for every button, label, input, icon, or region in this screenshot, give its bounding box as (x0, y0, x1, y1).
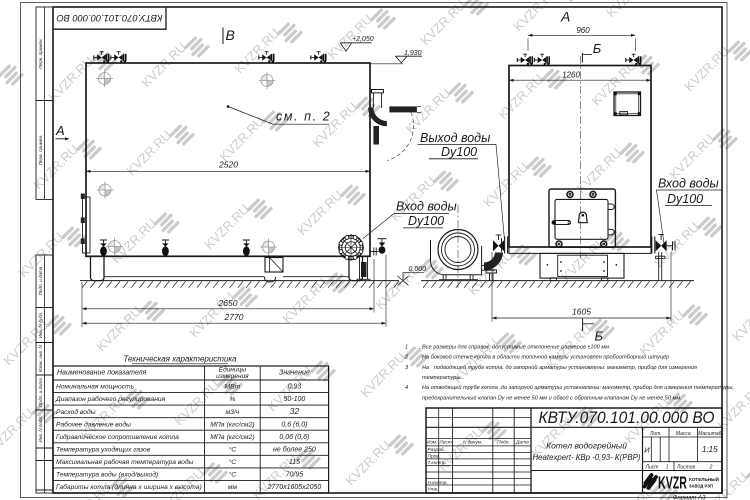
svg-text:Температура воды (вход/выход): Температура воды (вход/выход) (56, 471, 158, 479)
svg-text:На боковой стенке котла в обла: На боковой стенке котла в области топочн… (422, 354, 669, 361)
svg-text:4: 4 (405, 385, 408, 391)
svg-text:Максимальная рабочая температу: Максимальная рабочая температура воды (56, 458, 194, 466)
svg-text:В: В (226, 27, 235, 43)
svg-text:Утв.: Утв. (428, 487, 439, 493)
svg-text:Dy100: Dy100 (667, 192, 703, 206)
svg-text:А: А (55, 123, 65, 138)
svg-text:КВТУ.070.101.00.000 ВО: КВТУ.070.101.00.000 ВО (56, 12, 163, 23)
svg-text:мм: мм (228, 484, 238, 491)
svg-text:1:15: 1:15 (702, 445, 718, 454)
svg-text:Расход воды: Расход воды (56, 408, 96, 416)
svg-text:И: И (644, 446, 650, 455)
svg-text:температуры.: температуры. (422, 375, 462, 381)
svg-text:%: % (229, 396, 235, 403)
svg-text:Дата: Дата (515, 440, 529, 446)
svg-text:Лист: Лист (438, 440, 451, 446)
svg-text:Вход воды: Вход воды (396, 200, 457, 214)
svg-text:А: А (560, 9, 570, 25)
svg-text:115: 115 (289, 459, 300, 466)
svg-text:Dy100: Dy100 (408, 214, 444, 228)
svg-text:МПа (кгс/см2): МПа (кгс/см2) (210, 421, 254, 428)
svg-text:Температура уходящих газов: Температура уходящих газов (56, 445, 151, 453)
svg-text:32: 32 (290, 406, 300, 416)
svg-text:2650: 2650 (218, 298, 238, 308)
svg-text:Разраб.: Разраб. (428, 447, 445, 453)
svg-text:0,06 (0,6): 0,06 (0,6) (279, 434, 309, 441)
svg-text:Б: Б (595, 329, 604, 344)
svg-text:Лист: Лист (645, 464, 659, 470)
svg-text:0,93: 0,93 (288, 384, 302, 391)
svg-text:1,930: 1,930 (404, 50, 422, 57)
svg-text:960: 960 (576, 26, 590, 35)
svg-text:°С: °С (229, 458, 237, 466)
svg-text:Вход воды: Вход воды (658, 177, 719, 191)
svg-text:Наименование показателя: Наименование показателя (57, 370, 147, 377)
svg-text:Н.контр.: Н.контр. (428, 480, 448, 486)
svg-text:Масса: Масса (676, 431, 691, 437)
svg-text:не более 250: не более 250 (273, 445, 316, 453)
svg-text:1: 1 (405, 344, 408, 350)
svg-text:2770: 2770 (224, 312, 244, 322)
svg-text:На подводящей трубе котла, д: На подводящей трубе котла, до запорной а… (422, 364, 697, 371)
svg-text:2: 2 (709, 464, 713, 470)
svg-text:Номинальная мощность: Номинальная мощность (56, 384, 135, 391)
svg-text:Рабочее давление воды: Рабочее давление воды (56, 420, 131, 428)
svg-text:м3/ч: м3/ч (225, 409, 239, 416)
svg-text:Пров.: Пров. (428, 454, 441, 460)
svg-text:КОТЕЛЬНЫЙ: КОТЕЛЬНЫЙ (689, 477, 719, 482)
svg-text:Dy100: Dy100 (441, 145, 477, 159)
svg-text:Гидравлическое сопротивление к: Гидравлическое сопротивление котла (56, 433, 179, 441)
svg-text:Т.контр.: Т.контр. (428, 460, 447, 466)
svg-text:Техническая характеристика: Техническая характеристика (123, 355, 237, 364)
svg-text:0,6 (6,0): 0,6 (6,0) (281, 421, 307, 428)
svg-text:N докум.: N докум. (463, 440, 482, 446)
svg-text:70/95: 70/95 (286, 472, 304, 479)
svg-text:Котел водогрейный: Котел водогрейный (546, 441, 627, 451)
svg-text:KVZR: KVZR (658, 473, 687, 493)
svg-text:Heatexpert- КВр -0,93- К(РВР): Heatexpert- КВр -0,93- К(РВР) (533, 452, 641, 462)
svg-text:Взам. инв. N: Взам. инв. N (38, 345, 43, 372)
svg-text:Диапазон рабочего регулировани: Диапазон рабочего регулирования (55, 395, 166, 403)
svg-text:Инв. N дубл.: Инв. N дубл. (38, 312, 43, 339)
svg-text:Листов: Листов (676, 464, 696, 470)
svg-text:1605: 1605 (572, 307, 591, 317)
svg-text:измерения: измерения (216, 373, 249, 380)
svg-text:см. п. 2: см. п. 2 (276, 110, 331, 124)
svg-text:ЗАВОД РЭП: ЗАВОД РЭП (689, 484, 713, 489)
svg-text:Инв. N подл.: Инв. N подл. (38, 416, 43, 443)
svg-text:Перв. примен.: Перв. примен. (38, 38, 43, 69)
svg-text:0.000: 0.000 (409, 266, 427, 273)
svg-text:Все размеры для справок, допус: Все размеры для справок, допустимые откл… (422, 344, 611, 350)
svg-text:50-100: 50-100 (284, 396, 306, 403)
svg-text:°С: °С (229, 445, 237, 453)
svg-text:Подп. и дата: Подп. и дата (38, 378, 43, 407)
svg-text:Перв. примен.: Перв. примен. (38, 135, 43, 166)
svg-text:Выход воды: Выход воды (420, 131, 490, 145)
svg-text:Изм.: Изм. (427, 440, 437, 446)
svg-text:Значение: Значение (279, 370, 310, 377)
svg-text:+2,050: +2,050 (352, 36, 374, 43)
svg-text:На отводящей трубе котла ,до з: На отводящей трубе котла ,до запорной ар… (422, 384, 734, 391)
svg-text:Формат А3: Формат А3 (673, 496, 706, 500)
svg-text:Габариты котла (длинна х ширин: Габариты котла (длинна х ширина х высота… (56, 483, 202, 491)
svg-text:МВт: МВт (224, 384, 240, 391)
svg-text:1: 1 (666, 464, 669, 470)
svg-text:2520: 2520 (218, 160, 238, 170)
svg-text:°С: °С (229, 471, 237, 479)
svg-text:Подп. и дата: Подп. и дата (38, 266, 43, 295)
svg-text:Лит.: Лит. (649, 431, 662, 437)
svg-text:1260: 1260 (562, 70, 580, 79)
svg-text:Масштаб: Масштаб (698, 431, 722, 437)
svg-text:2770х1605х2050: 2770х1605х2050 (267, 484, 322, 491)
svg-text:КВТУ.070.101.00.000 ВО: КВТУ.070.101.00.000 ВО (539, 408, 715, 427)
svg-text:предохранительный клапан Dу н: предохранительный клапан Dу не менее 50 … (422, 394, 682, 401)
svg-text:МПа (кгс/см2): МПа (кгс/см2) (210, 434, 254, 441)
svg-text:Б: Б (593, 41, 602, 56)
svg-text:Подп.: Подп. (497, 440, 510, 446)
